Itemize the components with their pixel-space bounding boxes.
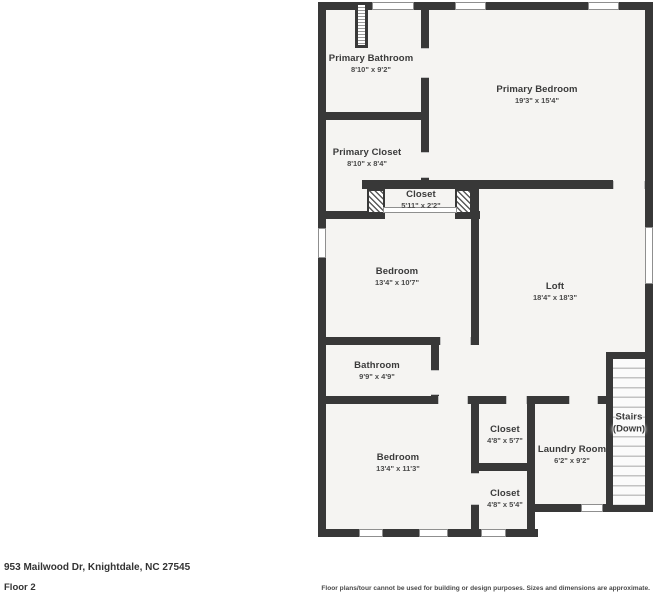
room-dimensions: 13'4" x 10'7" (375, 278, 419, 288)
room-dimensions: (Down) (613, 424, 645, 436)
room-name: Primary Bedroom (496, 84, 577, 96)
wall-closets-left-upper (471, 396, 479, 473)
room-dimensions: 5'11" x 2'2" (401, 201, 440, 211)
room-dimensions: 6'2" x 9'2" (538, 456, 606, 466)
wall-bath-closet-divider (318, 112, 428, 120)
room-name: Primary Closet (333, 147, 401, 159)
wall-closets-left-lower (471, 505, 479, 537)
room-dimensions: 4'8" x 5'4" (487, 500, 523, 510)
wall-exterior-left (318, 2, 326, 537)
shower-wall-symbol (355, 2, 368, 48)
door-closet-bottom (471, 473, 479, 505)
wall-stairs-top (606, 352, 652, 359)
window-bottom-1 (359, 529, 383, 537)
room-label: Closet 4'8" x 5'4" (487, 488, 523, 510)
room-label: Closet 4'8" x 5'7" (487, 424, 523, 446)
door-bedroom-middle (440, 337, 471, 345)
door-laundry (569, 396, 598, 404)
room-name: Loft (533, 281, 577, 293)
room-name: Primary Bathroom (329, 53, 413, 65)
room-dimensions: 9'9" x 4'9" (354, 372, 400, 382)
wall-closets-right (527, 396, 535, 537)
door-bathroom (431, 370, 439, 395)
wall-bedroom-loft-top (362, 180, 613, 189)
hatched-closet-wall-right (455, 189, 472, 214)
room-name: Closet (487, 424, 523, 436)
door-primary-bathroom (421, 48, 429, 78)
room-name: Closet (401, 189, 440, 201)
room-dimensions: 8'10" x 8'4" (333, 159, 401, 169)
disclaimer-text: Floor plans/tour cannot be used for buil… (321, 585, 650, 592)
window-bottom-2 (419, 529, 448, 537)
room-name: Stairs (613, 412, 645, 424)
door-closet-top (506, 396, 527, 404)
room-label: Bathroom 9'9" x 4'9" (354, 360, 400, 382)
room-label: Primary Bedroom 19'3" x 15'4" (496, 84, 577, 106)
wall-hall-bottom-seg1 (318, 396, 438, 404)
room-label: Laundry Room 6'2" x 9'2" (538, 444, 606, 466)
door-primary-closet (421, 152, 429, 178)
room-label: Bedroom 13'4" x 11'3" (376, 452, 420, 474)
window-left-bedroom (318, 228, 326, 258)
room-label: Closet 5'11" x 2'2" (401, 189, 440, 211)
window-top-1 (372, 2, 414, 10)
room-label: Bedroom 13'4" x 10'7" (375, 266, 419, 288)
room-label: Primary Bathroom 8'10" x 9'2" (329, 53, 413, 75)
window-bottom-3 (481, 529, 506, 537)
window-top-2 (455, 2, 486, 10)
wall-primary-vertical-upper (421, 2, 429, 48)
wall-bathroom-right-upper (431, 345, 439, 370)
room-label: Primary Closet 8'10" x 8'4" (333, 147, 401, 169)
room-dimensions: 19'3" x 15'4" (496, 96, 577, 106)
floorplan: Primary Bathroom 8'10" x 9'2" Primary Be… (0, 0, 653, 553)
room-name: Laundry Room (538, 444, 606, 456)
wall-bedroom-bottom (318, 337, 440, 345)
door-bedroom-bottom (438, 396, 468, 404)
wall-loft-left (471, 189, 479, 345)
door-loft-opening (613, 181, 645, 189)
window-right-loft (645, 227, 653, 284)
address-text: 953 Mailwood Dr, Knightdale, NC 27545 (4, 562, 190, 573)
window-top-3 (588, 2, 619, 10)
floorplan-page: { "address": "953 Mailwood Dr, Knightdal… (0, 0, 653, 600)
room-dimensions: 18'4" x 18'3" (533, 293, 577, 303)
window-laundry (581, 504, 603, 512)
room-dimensions: 8'10" x 9'2" (329, 65, 413, 75)
room-name: Bathroom (354, 360, 400, 372)
wall-closet-divider (471, 463, 535, 471)
room-name: Closet (487, 488, 523, 500)
floor-label: Floor 2 (4, 582, 36, 593)
room-label: Stairs (Down) (613, 412, 645, 437)
room-dimensions: 13'4" x 11'3" (376, 464, 420, 474)
room-name: Bedroom (376, 452, 420, 464)
room-dimensions: 4'8" x 5'7" (487, 436, 523, 446)
room-name: Bedroom (375, 266, 419, 278)
room-label: Loft 18'4" x 18'3" (533, 281, 577, 303)
